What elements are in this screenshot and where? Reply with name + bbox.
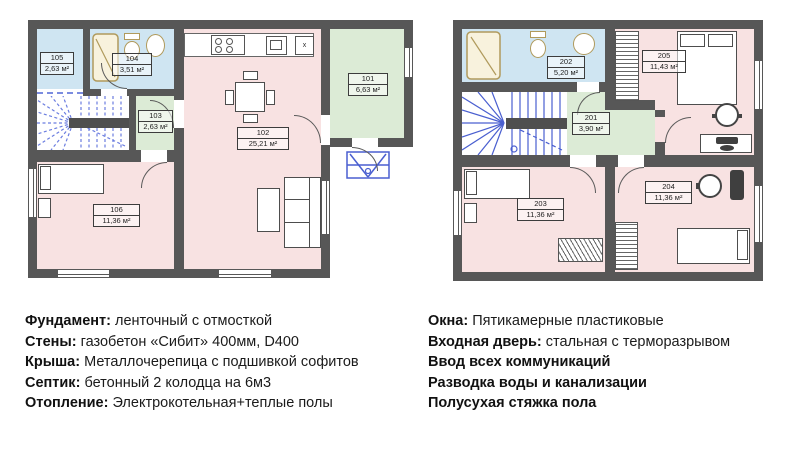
spec-text: Пятикамерные пластиковые: [472, 313, 664, 329]
wall-segment: [605, 29, 615, 110]
room-201-hall: [615, 110, 655, 155]
specs-right-column: Окна: Пятикамерные пластиковые Входная д…: [428, 311, 788, 414]
door-opening: [321, 115, 330, 145]
spec-line: Стены: газобетон «Сибит» 400мм, D400: [25, 332, 420, 353]
wall-segment: [321, 20, 330, 278]
toilet-icon: [528, 31, 548, 59]
desk-chair-icon: [716, 137, 738, 144]
bed-icon: [38, 164, 104, 194]
desk-chair-icon: [720, 145, 734, 151]
room-area: 11,36 м²: [94, 216, 139, 226]
coffee-table-icon: [257, 188, 280, 232]
room-number: 201: [573, 113, 609, 124]
stair-underpass-line: [37, 92, 83, 94]
wall-segment: [462, 155, 570, 167]
wall-segment: [28, 20, 37, 278]
room-number: 106: [94, 205, 139, 216]
wall-segment: [453, 272, 763, 281]
room-number: 203: [518, 199, 563, 210]
room-label-202: 202 5,20 м²: [547, 56, 585, 79]
room-number: 202: [548, 57, 584, 68]
bed-icon: [464, 169, 530, 199]
radiator-icon: [558, 238, 603, 262]
spec-label: Отопление:: [25, 395, 108, 411]
spec-line: Полусухая стяжка пола: [428, 393, 788, 414]
dining-table-icon: [235, 82, 265, 112]
window: [754, 60, 763, 110]
pot-icon: [715, 103, 739, 127]
spec-text: Электрокотельная+теплые полы: [112, 395, 332, 411]
window: [754, 185, 763, 243]
wall-segment: [37, 150, 141, 162]
room-area: 11,43 м²: [643, 62, 685, 72]
spec-label: Разводка воды и канализации: [428, 375, 647, 391]
room-area: 5,20 м²: [548, 68, 584, 78]
spec-line: Фундамент: ленточный с отмосткой: [25, 311, 420, 332]
room-label-201: 201 3,90 м²: [572, 112, 610, 135]
nightstand-icon: [38, 198, 51, 218]
wall-segment: [453, 20, 763, 29]
room-label-106: 106 11,36 м²: [93, 204, 140, 227]
wall-segment: [644, 155, 655, 167]
spec-label: Полусухая стяжка пола: [428, 395, 596, 411]
wardrobe-icon: [615, 222, 638, 270]
room-number: 103: [139, 111, 172, 122]
wall-segment: [330, 20, 413, 29]
shower-icon: [466, 31, 501, 80]
wall-segment: [129, 96, 136, 150]
spec-line: Септик: бетонный 2 колодца на 6м3: [25, 373, 420, 394]
spec-label: Входная дверь:: [428, 334, 542, 350]
window: [404, 47, 413, 78]
spec-label: Ввод всех коммуникаций: [428, 354, 610, 370]
wall-segment: [83, 89, 101, 96]
wall-segment: [605, 100, 655, 110]
room-area: 2,63 м²: [139, 122, 172, 132]
double-bed-icon: [677, 31, 737, 105]
room-number: 105: [41, 53, 73, 64]
wall-segment: [127, 89, 174, 96]
kitchen-sink-icon: [266, 36, 287, 55]
specs-left-column: Фундамент: ленточный с отмосткой Стены: …: [25, 311, 420, 414]
wall-segment: [174, 128, 184, 269]
room-label-103: 103 2,63 м²: [138, 110, 173, 133]
room-area: 25,21 м²: [238, 139, 288, 149]
room-area: 3,90 м²: [573, 124, 609, 134]
room-label-102: 102 25,21 м²: [237, 127, 289, 150]
spec-label: Крыша:: [25, 354, 80, 370]
spec-line: Разводка воды и канализации: [428, 373, 788, 394]
window: [453, 190, 462, 236]
sofa-icon: [284, 177, 321, 248]
wardrobe-icon: [615, 31, 639, 101]
chair-icon: [225, 90, 234, 105]
spec-text: ленточный с отмосткой: [115, 313, 272, 329]
wall-segment: [599, 82, 605, 92]
room-label-101: 101 6,63 м²: [348, 73, 388, 96]
room-label-105: 105 2,63 м²: [40, 52, 74, 75]
spec-text: газобетон «Сибит» 400мм, D400: [81, 334, 299, 350]
room-label-205: 205 11,43 м²: [642, 50, 686, 73]
spec-line: Окна: Пятикамерные пластиковые: [428, 311, 788, 332]
spec-line: Отопление: Электрокотельная+теплые полы: [25, 393, 420, 414]
wall-segment: [28, 20, 330, 29]
wall-segment: [330, 138, 352, 147]
spec-line: Входная дверь: стальная с терморазрывом: [428, 332, 788, 353]
wall-segment: [404, 20, 413, 147]
nightstand-icon: [464, 203, 477, 223]
stove-icon: [211, 35, 245, 55]
room-area: 2,63 м²: [41, 64, 73, 74]
room-number: 101: [349, 74, 387, 85]
floorplan-sheet: x 105 2,63 м² 104 3,51 м² 103 2,: [0, 0, 800, 457]
spec-label: Окна:: [428, 313, 468, 329]
room-number: 204: [646, 182, 691, 193]
wall-segment: [83, 29, 90, 89]
spec-line: Ввод всех коммуникаций: [428, 352, 788, 373]
spec-text: стальная с терморазрывом: [546, 334, 730, 350]
wall-segment: [655, 155, 754, 167]
spec-label: Септик:: [25, 375, 80, 391]
kitchen-unit-x: x: [295, 36, 314, 55]
wall-segment: [174, 29, 184, 100]
staircase-icon-f2: [462, 92, 567, 155]
room-area: 3,51 м²: [113, 65, 151, 75]
room-area: 6,63 м²: [349, 85, 387, 95]
chair-icon: [243, 71, 258, 80]
wall-segment: [167, 150, 174, 162]
wall-segment: [655, 110, 665, 117]
desk-icon: [730, 170, 744, 200]
spec-text: бетонный 2 колодца на 6м3: [84, 375, 271, 391]
spec-label: Фундамент:: [25, 313, 111, 329]
room-label-104: 104 3,51 м²: [112, 53, 152, 76]
staircase-icon-f1: [37, 96, 129, 150]
room-label-203: 203 11,36 м²: [517, 198, 564, 221]
room-area: 11,36 м²: [646, 193, 691, 203]
spec-line: Крыша: Металлочерепица с подшивкой софит…: [25, 352, 420, 373]
window: [321, 180, 330, 235]
room-number: 104: [113, 54, 151, 65]
chair-icon: [266, 90, 275, 105]
room-label-204: 204 11,36 м²: [645, 181, 692, 204]
wall-segment: [462, 82, 577, 92]
wall-segment: [596, 155, 618, 167]
chair-icon: [698, 174, 722, 198]
chair-icon: [243, 114, 258, 123]
window: [28, 168, 37, 218]
spec-label: Стены:: [25, 334, 77, 350]
sink-icon: [573, 33, 595, 55]
spec-text: Металлочерепица с подшивкой софитов: [84, 354, 359, 370]
room-area: 11,36 м²: [518, 210, 563, 220]
wall-segment: [378, 138, 413, 147]
wall-segment: [453, 20, 462, 281]
room-number: 205: [643, 51, 685, 62]
window: [57, 269, 110, 278]
wall-segment: [605, 167, 615, 272]
window: [218, 269, 272, 278]
room-number: 102: [238, 128, 288, 139]
single-bed-icon: [677, 228, 750, 264]
